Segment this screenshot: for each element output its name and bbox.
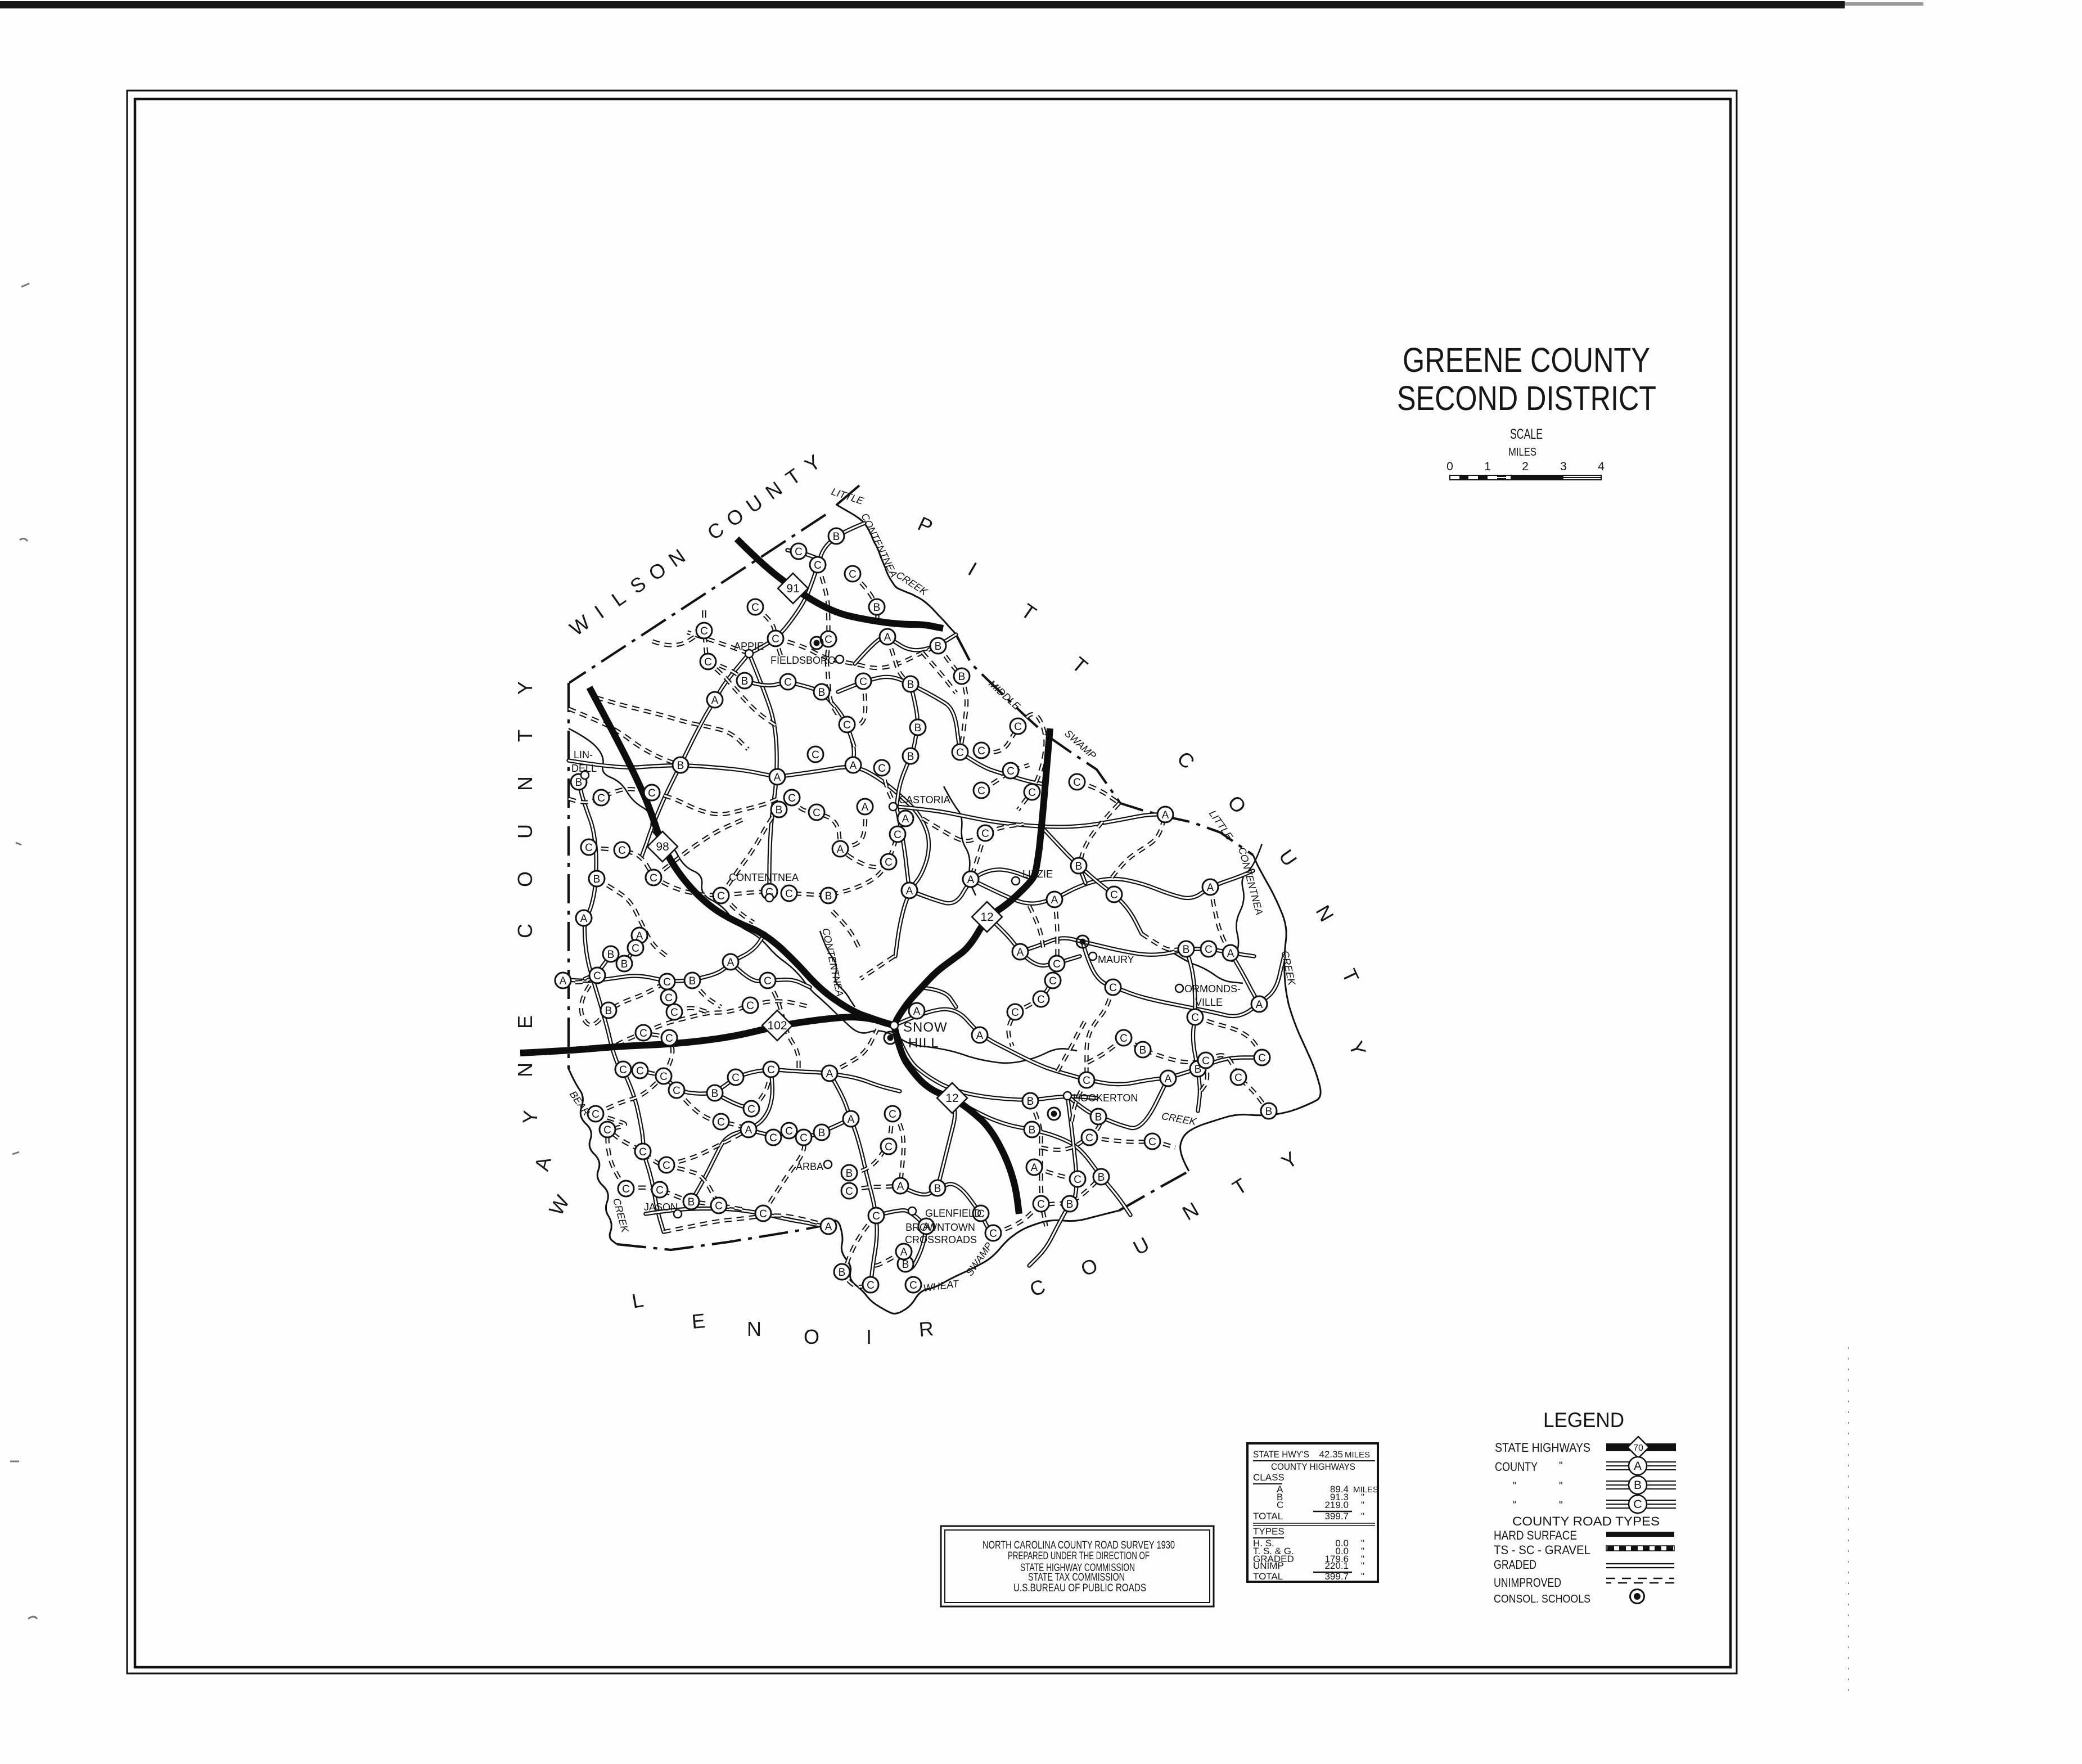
svg-text:O: O: [804, 1325, 819, 1348]
svg-text:MILES: MILES: [1353, 1485, 1378, 1495]
svg-text:B: B: [839, 1267, 846, 1279]
svg-text:JASON: JASON: [644, 1201, 678, 1213]
svg-text:R: R: [918, 1317, 934, 1341]
svg-text:": ": [1513, 1480, 1517, 1492]
svg-text:Y: Y: [518, 1109, 542, 1124]
svg-text:102: 102: [767, 1019, 787, 1032]
svg-text:A: A: [906, 885, 913, 897]
svg-text:E: E: [513, 1015, 537, 1029]
svg-text:C: C: [648, 787, 656, 799]
svg-text:C: C: [989, 1228, 997, 1240]
svg-text:70: 70: [1633, 1443, 1643, 1453]
svg-text:B: B: [914, 722, 922, 734]
svg-text:UNIMPROVED: UNIMPROVED: [1494, 1576, 1561, 1590]
svg-text:A: A: [1017, 947, 1024, 958]
svg-text:C: C: [1037, 994, 1045, 1006]
svg-text:B: B: [934, 1183, 941, 1195]
svg-text:A: A: [1162, 809, 1169, 821]
svg-text:C: C: [878, 763, 886, 775]
svg-text:C: C: [977, 745, 985, 757]
svg-text:B: B: [621, 958, 628, 970]
svg-text:LIN-: LIN-: [574, 749, 593, 760]
svg-text:B: B: [907, 679, 914, 691]
svg-text:C: C: [1007, 766, 1015, 777]
svg-text:C: C: [665, 1033, 673, 1045]
svg-text:B: B: [873, 602, 881, 614]
svg-text:B: B: [1029, 1124, 1036, 1136]
svg-text:C: C: [784, 677, 792, 688]
svg-text:A: A: [850, 760, 857, 772]
svg-text:B: B: [575, 777, 583, 789]
svg-text:Y: Y: [513, 681, 537, 695]
svg-text:B: B: [741, 676, 749, 687]
svg-text:TS - SC - GRAVEL: TS - SC - GRAVEL: [1494, 1543, 1590, 1557]
svg-text:C: C: [867, 1280, 875, 1291]
svg-text:A: A: [1165, 1073, 1172, 1085]
svg-text:N: N: [747, 1317, 761, 1340]
svg-text:B: B: [1634, 1479, 1642, 1492]
svg-text:C: C: [767, 1064, 775, 1076]
svg-text:CONSOL. SCHOOLS: CONSOL. SCHOOLS: [1494, 1593, 1590, 1605]
svg-text:COUNTY HIGHWAYS: COUNTY HIGHWAYS: [1271, 1461, 1355, 1472]
svg-text:C: C: [1028, 787, 1036, 799]
svg-text:FIELDSBORO: FIELDSBORO: [770, 655, 836, 666]
svg-text:220.1: 220.1: [1324, 1560, 1349, 1571]
svg-text:BROWNTOWN: BROWNTOWN: [905, 1222, 975, 1233]
svg-text:A: A: [976, 1030, 984, 1042]
svg-text:A: A: [825, 1221, 832, 1233]
svg-text:MAURY: MAURY: [1098, 954, 1134, 965]
svg-text:3: 3: [1560, 460, 1567, 473]
svg-text:U.S.BUREAU OF PUBLIC ROADS: U.S.BUREAU OF PUBLIC ROADS: [1013, 1582, 1146, 1594]
svg-text:B: B: [1139, 1045, 1147, 1056]
svg-text:C: C: [1085, 1132, 1093, 1144]
svg-text:C: C: [894, 829, 902, 841]
svg-text:": ": [1361, 1571, 1364, 1582]
svg-text:C: C: [785, 1126, 793, 1137]
svg-text:APPIE: APPIE: [734, 641, 764, 652]
svg-text:SNOW: SNOW: [903, 1020, 948, 1035]
svg-text:A: A: [711, 695, 719, 706]
svg-text:C: C: [785, 888, 793, 900]
svg-text:": ": [1559, 1460, 1563, 1472]
svg-text:2: 2: [1522, 460, 1529, 473]
svg-text:B: B: [935, 641, 942, 652]
svg-text:B: B: [1066, 1199, 1074, 1210]
svg-text:C: C: [732, 1072, 740, 1084]
svg-text:C: C: [700, 625, 708, 637]
svg-text:MILES: MILES: [1345, 1450, 1370, 1460]
svg-text:219.0: 219.0: [1324, 1500, 1349, 1510]
svg-text:C: C: [859, 676, 867, 688]
svg-text:B: B: [593, 874, 601, 885]
svg-text:C: C: [717, 890, 725, 902]
svg-text:A: A: [1051, 894, 1058, 906]
svg-text:C: C: [603, 1124, 611, 1136]
svg-text:A: A: [580, 913, 588, 925]
svg-text:399.7: 399.7: [1324, 1511, 1349, 1522]
svg-text:STATE HIGHWAYS: STATE HIGHWAYS: [1495, 1441, 1590, 1455]
svg-text:C: C: [885, 1141, 893, 1153]
svg-text:VILLE: VILLE: [1195, 997, 1223, 1008]
svg-text:C: C: [1234, 1072, 1242, 1084]
svg-text:U: U: [513, 824, 537, 839]
svg-text:C: C: [824, 634, 832, 646]
svg-text:NORTH CAROLINA COUNTY ROAD SUR: NORTH CAROLINA COUNTY ROAD SURVEY 1930: [983, 1540, 1175, 1551]
svg-text:C: C: [663, 976, 671, 988]
svg-text:C: C: [1120, 1033, 1128, 1045]
svg-text:C: C: [764, 975, 772, 987]
svg-text:CROSSROADS: CROSSROADS: [905, 1234, 977, 1245]
svg-text:B: B: [1027, 1096, 1034, 1108]
svg-text:A: A: [826, 1068, 833, 1080]
svg-text:A: A: [902, 813, 909, 825]
svg-text:A: A: [560, 975, 567, 987]
svg-text:C: C: [704, 656, 712, 668]
svg-text:0: 0: [1446, 460, 1453, 473]
svg-text:C: C: [1053, 958, 1061, 970]
svg-text:B: B: [1095, 1111, 1102, 1123]
svg-text:C: C: [1074, 1174, 1081, 1186]
svg-text:C: C: [849, 569, 857, 580]
svg-text:A: A: [967, 874, 975, 886]
svg-text:UNIMP: UNIMP: [1253, 1560, 1284, 1571]
svg-text:B: B: [607, 949, 615, 961]
svg-text:C: C: [977, 785, 985, 797]
svg-text:N: N: [513, 1063, 537, 1077]
svg-text:PREPARED UNDER THE DIRECTION O: PREPARED UNDER THE DIRECTION OF: [1008, 1550, 1150, 1562]
svg-text:C: C: [639, 1028, 647, 1039]
svg-text:C: C: [619, 1064, 627, 1076]
svg-text:B: B: [711, 1088, 719, 1100]
svg-text:C: C: [795, 546, 803, 558]
svg-text:B: B: [833, 531, 840, 543]
svg-text:C: C: [1277, 1500, 1283, 1510]
svg-text:I: I: [866, 1325, 872, 1348]
svg-text:C: C: [585, 842, 593, 854]
svg-text:C: C: [1205, 944, 1213, 956]
svg-text:LIZZIE: LIZZIE: [1022, 868, 1053, 880]
svg-text:1: 1: [1484, 460, 1491, 473]
svg-text:C: C: [813, 807, 821, 819]
svg-text:LEGEND: LEGEND: [1543, 1408, 1624, 1432]
svg-text:C: C: [717, 1117, 725, 1128]
svg-text:": ": [1361, 1500, 1364, 1510]
svg-text:C: C: [622, 1183, 630, 1195]
svg-text:T: T: [513, 730, 537, 742]
svg-text:C: C: [1633, 1498, 1642, 1511]
svg-text:B: B: [846, 1168, 853, 1180]
svg-text:": ": [1513, 1500, 1517, 1511]
svg-text:O: O: [513, 871, 537, 887]
svg-text:MILES: MILES: [1508, 446, 1536, 458]
svg-text:A: A: [848, 1114, 855, 1126]
svg-text:TOTAL: TOTAL: [1253, 1511, 1283, 1522]
svg-text:CONTENTNEA: CONTENTNEA: [729, 872, 799, 883]
svg-text:A: A: [884, 632, 891, 643]
svg-text:C: C: [843, 719, 851, 731]
svg-text:": ": [1361, 1560, 1364, 1571]
svg-text:C: C: [885, 857, 893, 868]
svg-text:C: C: [956, 747, 964, 759]
svg-text:A: A: [774, 772, 781, 784]
svg-text:C: C: [889, 1109, 896, 1120]
svg-text:A: A: [1031, 1162, 1038, 1174]
svg-text:COUNTY: COUNTY: [1495, 1460, 1538, 1474]
svg-text:C: C: [1073, 777, 1081, 789]
svg-text:C: C: [746, 1000, 754, 1012]
svg-text:C: C: [632, 943, 639, 955]
svg-text:B: B: [1183, 944, 1190, 956]
svg-text:A: A: [862, 802, 869, 813]
svg-text:B: B: [688, 1196, 695, 1208]
svg-text:C: C: [1202, 1055, 1210, 1067]
svg-text:B: B: [677, 760, 684, 772]
svg-text:B: B: [1075, 861, 1083, 872]
svg-text:A: A: [900, 1246, 908, 1258]
svg-text:A: A: [727, 957, 734, 969]
svg-text:N: N: [513, 776, 537, 791]
svg-text:C: C: [909, 1280, 917, 1291]
svg-text:C: C: [650, 872, 657, 884]
svg-text:C: C: [670, 1007, 678, 1019]
svg-text:B: B: [776, 804, 783, 816]
svg-text:C: C: [1037, 1199, 1045, 1210]
svg-text:HOOKERTON: HOOKERTON: [1073, 1092, 1138, 1104]
svg-text:B: B: [818, 1127, 826, 1139]
svg-text:C: C: [788, 793, 796, 804]
svg-text:42.35: 42.35: [1319, 1449, 1343, 1460]
svg-text:HARD SURFACE: HARD SURFACE: [1494, 1528, 1577, 1542]
svg-text:B: B: [818, 687, 826, 699]
svg-text:B: B: [1098, 1172, 1105, 1183]
svg-text:C: C: [639, 1146, 647, 1158]
svg-text:B: B: [907, 751, 914, 763]
svg-text:GLENFIELD: GLENFIELD: [925, 1208, 981, 1219]
svg-text:C: C: [769, 1132, 777, 1144]
svg-text:B: B: [1265, 1106, 1273, 1118]
svg-text:C: C: [656, 1185, 664, 1196]
svg-text:CASTORIA: CASTORIA: [899, 794, 950, 805]
svg-text:COUNTY ROAD TYPES: COUNTY ROAD TYPES: [1512, 1514, 1660, 1528]
svg-text:A: A: [1227, 948, 1234, 960]
svg-text:": ": [1361, 1511, 1364, 1522]
svg-text:TYPES: TYPES: [1253, 1526, 1285, 1537]
svg-text:C: C: [1014, 721, 1022, 733]
svg-text:C: C: [1049, 975, 1057, 987]
svg-text:C: C: [618, 845, 626, 857]
svg-text:C: C: [812, 749, 819, 761]
svg-text:A: A: [837, 844, 844, 856]
svg-text:A: A: [1256, 999, 1263, 1011]
svg-text:": ": [1559, 1480, 1563, 1492]
svg-text:C: C: [981, 828, 989, 840]
svg-text:12: 12: [945, 1092, 958, 1105]
svg-text:B: B: [689, 975, 696, 987]
svg-text:C: C: [513, 924, 537, 938]
svg-text:91: 91: [786, 582, 799, 595]
svg-text:C: C: [665, 992, 673, 1004]
svg-text:C: C: [636, 1065, 644, 1077]
svg-text:C: C: [772, 633, 779, 645]
svg-text:4: 4: [1598, 460, 1605, 473]
svg-text:GRADED: GRADED: [1494, 1558, 1536, 1572]
svg-text:": ": [1559, 1500, 1563, 1511]
svg-text:12: 12: [980, 911, 993, 924]
svg-text:B: B: [902, 1259, 909, 1271]
svg-text:98: 98: [656, 840, 669, 853]
svg-text:C: C: [759, 1208, 767, 1220]
svg-text:C: C: [673, 1085, 681, 1097]
svg-text:C: C: [715, 1200, 723, 1212]
svg-text:SECOND DISTRICT: SECOND DISTRICT: [1397, 379, 1656, 417]
svg-text:C: C: [593, 970, 601, 982]
svg-text:B: B: [825, 890, 832, 902]
svg-text:C: C: [663, 1160, 670, 1172]
svg-text:ORMONDS-: ORMONDS-: [1184, 983, 1241, 994]
svg-text:A: A: [1634, 1460, 1642, 1473]
svg-text:A: A: [913, 1006, 921, 1018]
svg-text:C: C: [1148, 1136, 1156, 1148]
svg-text:399.7: 399.7: [1324, 1571, 1349, 1582]
svg-text:STATE TAX COMMISSION: STATE TAX COMMISSION: [1028, 1572, 1125, 1583]
svg-text:C: C: [845, 1186, 853, 1198]
svg-text:E: E: [691, 1309, 706, 1333]
svg-text:C: C: [592, 1109, 600, 1120]
svg-text:TOTAL: TOTAL: [1253, 1571, 1283, 1582]
svg-text:C: C: [872, 1210, 880, 1222]
svg-text:C: C: [751, 602, 759, 614]
svg-text:C: C: [1191, 1012, 1199, 1024]
svg-text:C: C: [1258, 1052, 1266, 1064]
svg-text:C: C: [597, 793, 605, 804]
svg-text:B: B: [958, 671, 966, 683]
svg-text:C: C: [1011, 1007, 1019, 1019]
svg-text:GREENE COUNTY: GREENE COUNTY: [1403, 341, 1650, 379]
svg-text:A: A: [745, 1124, 752, 1136]
svg-text:C: C: [800, 1132, 808, 1144]
svg-text:B: B: [605, 1005, 612, 1017]
svg-text:C: C: [1110, 889, 1118, 901]
svg-text:C: C: [1109, 982, 1117, 994]
svg-text:C: C: [1083, 1075, 1090, 1087]
svg-text:C: C: [747, 1104, 755, 1115]
svg-text:ARBA: ARBA: [796, 1161, 823, 1172]
svg-text:A: A: [1207, 882, 1214, 894]
svg-text:HILL: HILL: [908, 1036, 939, 1051]
svg-text:C: C: [814, 560, 822, 571]
svg-text:SCALE: SCALE: [1510, 426, 1543, 442]
svg-text:A: A: [897, 1181, 904, 1192]
svg-text:CLASS: CLASS: [1253, 1472, 1285, 1483]
svg-text:STATE HWY'S: STATE HWY'S: [1253, 1449, 1309, 1460]
svg-text:C: C: [660, 1071, 668, 1083]
